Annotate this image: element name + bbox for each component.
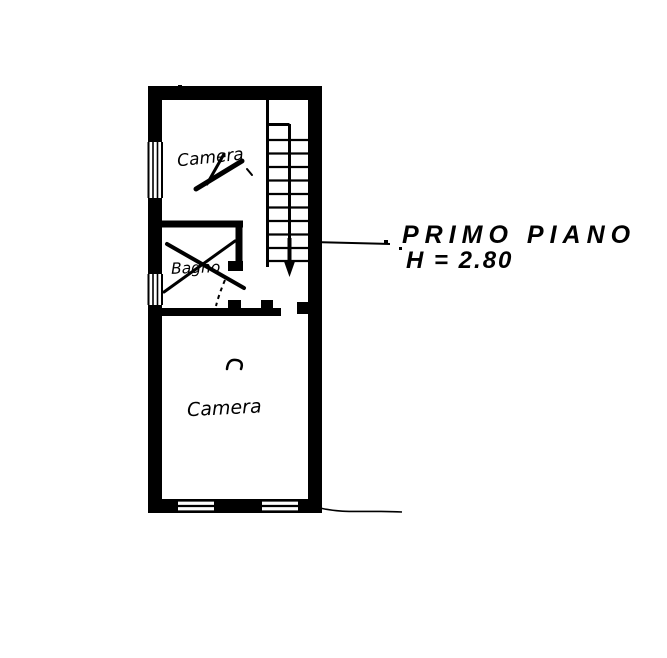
- room-label-camera-lower: Camera: [186, 395, 262, 421]
- door-jamb-block: [297, 302, 309, 314]
- door-jamb-block: [261, 300, 273, 309]
- staircase: [267, 100, 308, 277]
- window-icon: [178, 500, 214, 513]
- leader-line: [312, 242, 390, 244]
- floor-plan-drawing: Camera Bagno Camera PRIMO PIANO H = 2.80: [0, 0, 667, 658]
- window-icon: [262, 500, 298, 513]
- door-swing-dashed: [216, 280, 225, 306]
- window-icon: [147, 274, 164, 305]
- stairs-down-arrow-icon: [284, 238, 296, 277]
- camera-lower-squiggle: [227, 360, 242, 369]
- floor-height-note: H = 2.80: [406, 247, 513, 274]
- floor-annotation: PRIMO PIANO H = 2.80: [312, 221, 636, 274]
- window-icon: [147, 142, 164, 198]
- door-jamb-block: [228, 300, 241, 309]
- ground-line: [320, 508, 402, 512]
- wall-end-block: [228, 261, 243, 271]
- room-label-bagno: Bagno: [171, 258, 221, 278]
- scanned-floor-plan-page: Camera Bagno Camera PRIMO PIANO H = 2.80: [0, 0, 667, 658]
- floor-title: PRIMO PIANO: [402, 221, 636, 249]
